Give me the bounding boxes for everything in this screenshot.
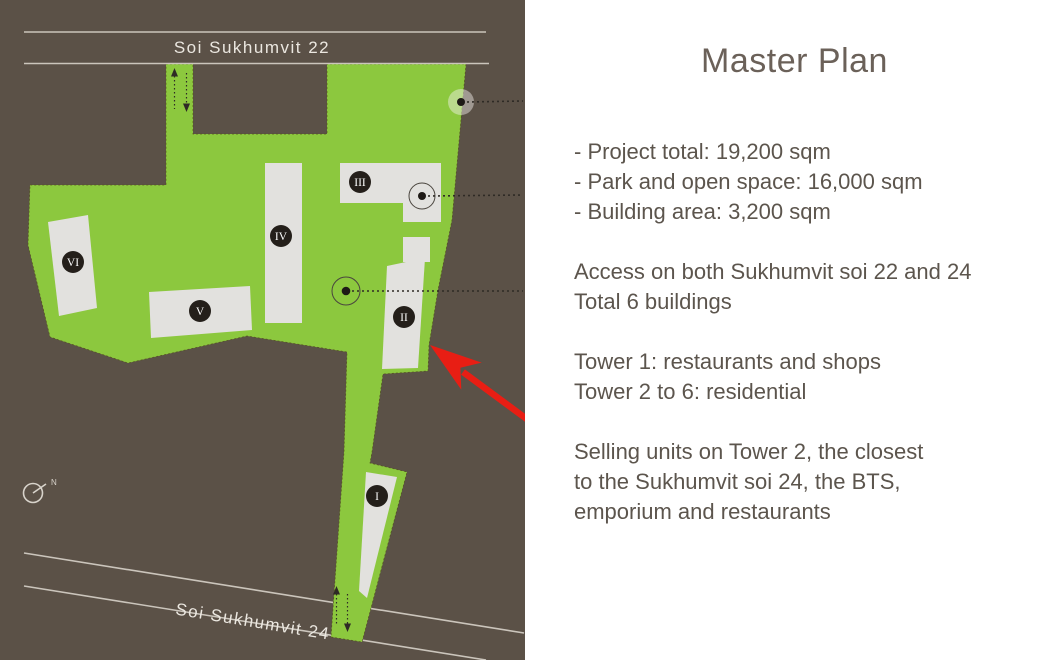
page-title: Master Plan: [525, 42, 1050, 81]
road-sukhumvit-22-label: Soi Sukhumvit 22: [174, 38, 330, 57]
site-plan-map: Soi Sukhumvit 24 Soi Sukhumvit 22: [0, 0, 525, 660]
stat-line: - Park and open space: 16,000 sqm: [574, 167, 923, 197]
building-annex: [403, 237, 430, 262]
project-stats: - Project total: 19,200 sqm - Park and o…: [574, 137, 923, 227]
access-info: Access on both Sukhumvit soi 22 and 24 T…: [574, 257, 971, 317]
marker-dot: [342, 287, 351, 296]
info-line: Total 6 buildings: [574, 287, 971, 317]
marker-dot: [418, 192, 426, 200]
selling-units-info: Selling units on Tower 2, the closest to…: [574, 437, 923, 527]
info-line: Tower 1: restaurants and shops: [574, 347, 881, 377]
info-line: to the Sukhumvit soi 24, the BTS,: [574, 467, 923, 497]
stat-line: - Project total: 19,200 sqm: [574, 137, 923, 167]
info-panel: Master Plan: [525, 0, 1050, 660]
badge-label-tower-5: V: [196, 306, 205, 318]
master-plan-slide: Soi Sukhumvit 24 Soi Sukhumvit 22: [0, 0, 1050, 660]
compass-label: N: [51, 478, 57, 487]
tower-usage-info: Tower 1: restaurants and shops Tower 2 t…: [574, 347, 881, 407]
marker-dot: [457, 98, 465, 106]
badge-label-tower-3: III: [354, 177, 366, 189]
info-line: emporium and restaurants: [574, 497, 923, 527]
badge-label-tower-6: VI: [67, 257, 79, 269]
info-line: Access on both Sukhumvit soi 22 and 24: [574, 257, 971, 287]
stat-line: - Building area: 3,200 sqm: [574, 197, 923, 227]
badge-label-tower-1: I: [375, 491, 379, 503]
info-line: Selling units on Tower 2, the closest: [574, 437, 923, 467]
badge-label-tower-4: IV: [275, 231, 288, 243]
info-line: Tower 2 to 6: residential: [574, 377, 881, 407]
badge-label-tower-2: II: [400, 312, 408, 324]
